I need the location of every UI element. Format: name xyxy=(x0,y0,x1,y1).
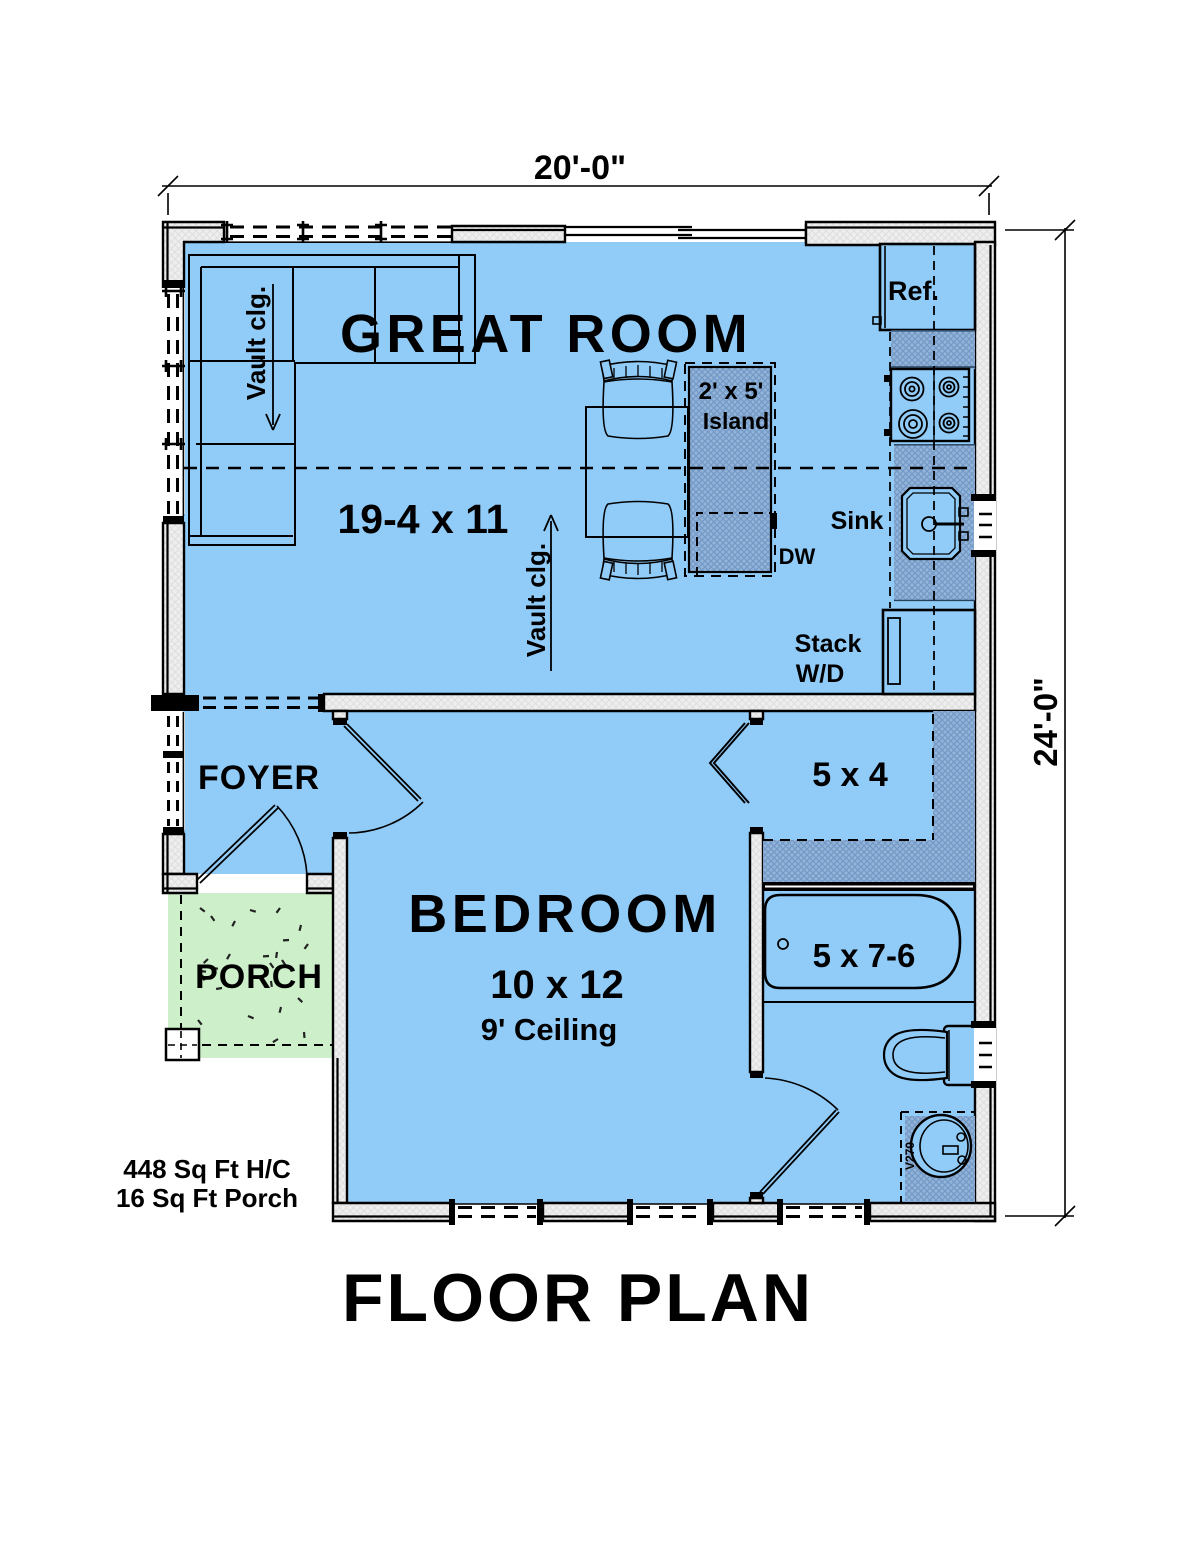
svg-text:10 x 12: 10 x 12 xyxy=(490,963,623,1007)
svg-text:5 x 4: 5 x 4 xyxy=(812,756,888,794)
svg-text:W/D: W/D xyxy=(796,660,845,688)
svg-text:GREAT ROOM: GREAT ROOM xyxy=(340,304,752,364)
svg-text:19-4 x 11: 19-4 x 11 xyxy=(338,496,509,542)
svg-text:V270: V270 xyxy=(903,1142,917,1170)
svg-text:BEDROOM: BEDROOM xyxy=(408,884,722,944)
svg-text:9' Ceiling: 9' Ceiling xyxy=(481,1012,618,1047)
svg-text:FLOOR PLAN: FLOOR PLAN xyxy=(342,1260,814,1336)
svg-text:24'-0": 24'-0" xyxy=(1027,677,1064,767)
svg-text:Vault clg.: Vault clg. xyxy=(521,543,551,657)
svg-text:PORCH: PORCH xyxy=(195,958,323,996)
svg-text:2' x 5': 2' x 5' xyxy=(699,378,764,405)
svg-text:FOYER: FOYER xyxy=(198,759,320,797)
svg-text:Vault clg.: Vault clg. xyxy=(241,286,271,400)
svg-text:20'-0": 20'-0" xyxy=(534,149,626,187)
svg-text:5 x 7-6: 5 x 7-6 xyxy=(813,937,916,974)
svg-text:Sink: Sink xyxy=(831,507,884,535)
svg-text:16 Sq Ft Porch: 16 Sq Ft Porch xyxy=(116,1183,298,1213)
svg-text:Stack: Stack xyxy=(795,630,862,658)
svg-text:DW: DW xyxy=(779,544,816,569)
svg-text:448 Sq Ft H/C: 448 Sq Ft H/C xyxy=(123,1154,291,1184)
svg-text:Ref.: Ref. xyxy=(888,276,939,306)
svg-text:Island: Island xyxy=(703,408,769,434)
